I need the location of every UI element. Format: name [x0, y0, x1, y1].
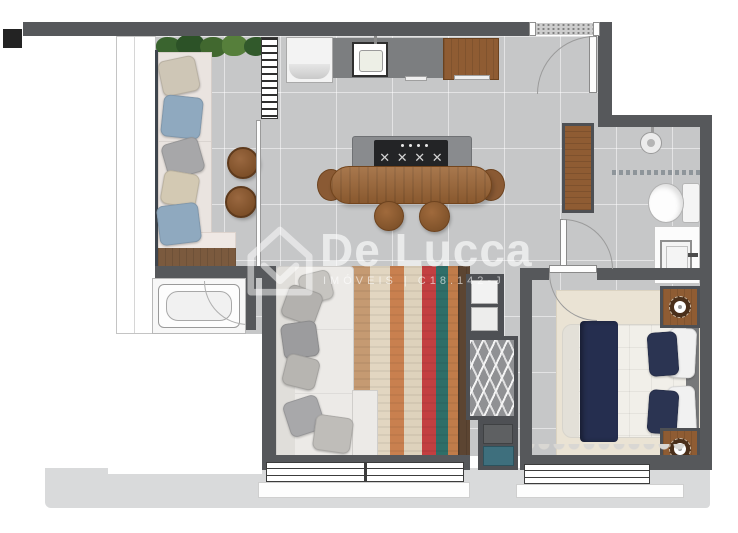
- balcony-side-table: [227, 147, 259, 179]
- outside-top-right: [612, 0, 738, 115]
- bedroom-door-leaf: [549, 265, 597, 273]
- sofa-corner-module: [352, 390, 378, 462]
- balcony-side-table: [225, 186, 257, 218]
- bench-wood-base: [158, 248, 236, 268]
- laundry-bins: [478, 420, 518, 470]
- bench-pillow: [156, 202, 203, 247]
- shower-glass-line: [612, 170, 700, 175]
- burner-icon: ✕: [379, 151, 390, 164]
- burner-icon: ✕: [397, 151, 408, 164]
- shower-head: [640, 132, 662, 154]
- balcony-railing: [116, 36, 156, 334]
- laundry-bin-gray: [483, 424, 513, 444]
- laundry-cabinet: [466, 274, 504, 336]
- entry-sill: [536, 23, 594, 35]
- outside-right: [712, 115, 738, 515]
- laundry-bin-teal: [483, 446, 514, 466]
- wall-right: [700, 122, 712, 470]
- kitchen-counter: [333, 38, 444, 78]
- burner-icon: ✕: [414, 151, 425, 164]
- dining-stool: [419, 201, 450, 232]
- dining-stool: [374, 201, 404, 231]
- laundry-drawer: [471, 280, 498, 304]
- drying-rack-lines: [470, 340, 514, 416]
- sink-basin: [359, 50, 383, 72]
- living-window-sill: [258, 482, 470, 498]
- floor-plan: ✕✕✕✕: [0, 0, 738, 533]
- wall-right-upper: [598, 36, 612, 124]
- entry-jamb: [593, 22, 600, 36]
- cooktop: ✕✕✕✕: [374, 140, 448, 168]
- bench-pillow: [160, 94, 204, 140]
- sofa-pillow: [280, 320, 321, 361]
- nightstand: [660, 286, 700, 328]
- vanity-faucet-icon: [688, 253, 698, 257]
- toilet-tank: [682, 183, 700, 223]
- wall-nook-top: [155, 266, 262, 278]
- fridge: [286, 37, 333, 83]
- bed-pillow-navy: [647, 331, 680, 377]
- shower-head-center: [647, 139, 655, 147]
- wall-bedroom-left: [520, 268, 532, 457]
- cabinet-handle: [454, 75, 490, 80]
- cooktop-burners: ✕✕✕✕: [376, 148, 446, 166]
- balcony-sliding-door: [256, 120, 261, 268]
- hall-wardrobe-wood: [565, 126, 591, 210]
- sofa-pillow: [312, 414, 355, 455]
- cooktop-knob-dots: [401, 144, 428, 147]
- wall-top: [23, 22, 533, 36]
- hall-wardrobe: [562, 123, 594, 213]
- fridge-front: [289, 64, 330, 79]
- bed-runner: [580, 321, 618, 442]
- entry-jamb: [529, 22, 536, 36]
- bedroom-window-sill: [516, 484, 684, 498]
- column: [3, 29, 22, 48]
- toilet-bowl: [648, 183, 684, 223]
- kitchen-cabinet: [443, 38, 499, 80]
- laundry-drawer: [471, 307, 498, 331]
- outside-bottom-left: [108, 334, 262, 474]
- wall-bathroom-top: [598, 115, 712, 127]
- wall-bedroom-top: [597, 268, 712, 280]
- counter-handle: [405, 76, 427, 81]
- wall-living-left: [262, 266, 276, 462]
- burner-icon: ✕: [432, 151, 443, 164]
- drying-rack: [466, 336, 518, 420]
- nightstand-lamp-dot: [678, 305, 682, 309]
- wall-corridor-stub: [520, 268, 549, 280]
- vanity-basin: [666, 246, 688, 270]
- bench-pillow: [157, 54, 202, 97]
- living-window: [266, 462, 464, 482]
- wall-nook-right: [246, 278, 256, 330]
- folding-screen: [261, 37, 278, 119]
- dining-table: [330, 166, 492, 204]
- bedroom-window: [524, 464, 650, 484]
- kitchen-sink: [352, 42, 388, 77]
